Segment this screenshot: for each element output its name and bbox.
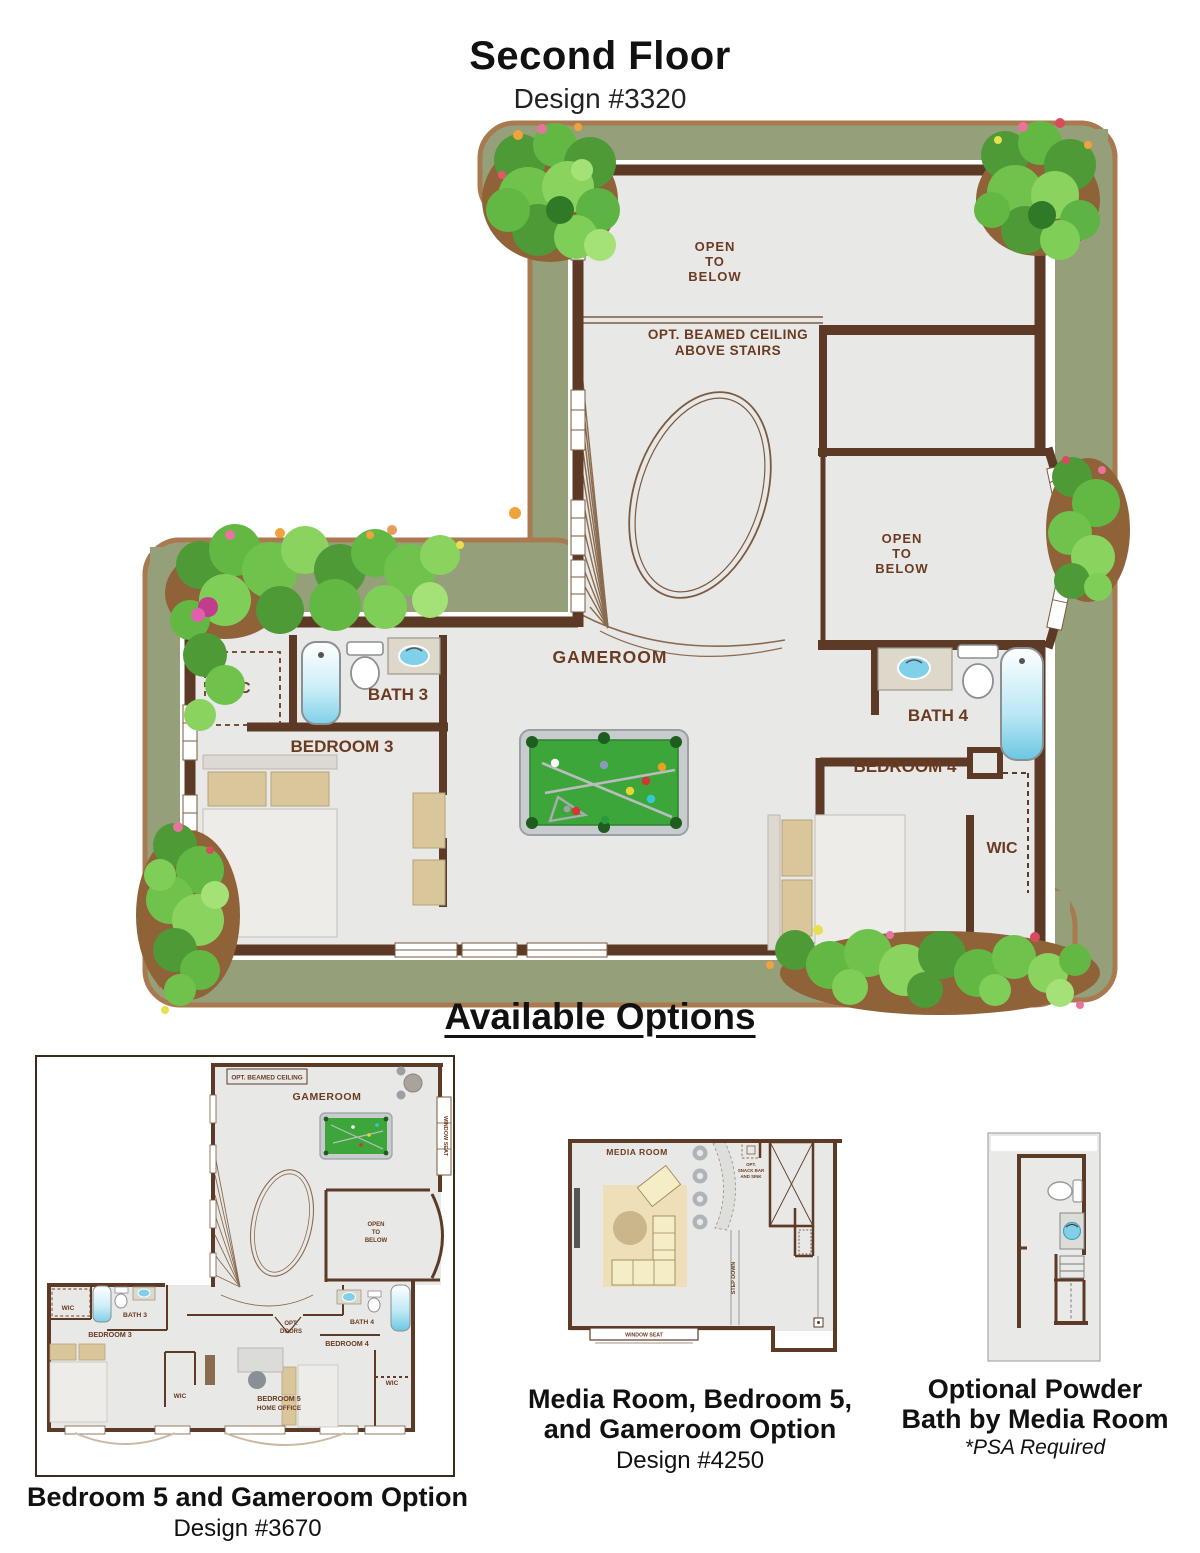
svg-text:BELOW: BELOW xyxy=(875,561,928,576)
svg-text:BELOW: BELOW xyxy=(688,269,741,284)
option1-label-wic-right: WIC xyxy=(386,1380,399,1387)
option3-caption: Optional Powder Bath by Media Room *PSA … xyxy=(890,1374,1180,1460)
svg-text:HOME OFFICE: HOME OFFICE xyxy=(257,1405,302,1412)
label-gameroom: GAMEROOM xyxy=(553,647,668,667)
option2-tv xyxy=(574,1188,580,1248)
option3-sink xyxy=(1060,1213,1084,1249)
label-bath3: BATH 3 xyxy=(368,685,428,704)
option2-label-snack-bar: OPT. xyxy=(746,1162,756,1167)
page-title: Second Floor xyxy=(0,34,1200,79)
svg-text:TO: TO xyxy=(892,546,912,561)
option1-label-bedroom4: BEDROOM 4 xyxy=(325,1339,369,1348)
label-bedroom4: BEDROOM 4 xyxy=(854,757,958,776)
option1-caption-title: Bedroom 5 and Gameroom Option xyxy=(15,1482,480,1512)
option1-pool-table xyxy=(320,1113,392,1159)
label-bath4: BATH 4 xyxy=(908,706,969,725)
option3-header-strip xyxy=(991,1136,1097,1151)
option2-label-window-seat: WINDOW SEAT xyxy=(625,1333,663,1339)
option1-plan: WINDOW SEAT xyxy=(35,1055,455,1477)
label-beamed-ceiling: OPT. BEAMED CEILING xyxy=(648,327,808,342)
option1-window-seat: WINDOW SEAT xyxy=(437,1097,451,1175)
option2-caption: Media Room, Bedroom 5, and Gameroom Opti… xyxy=(505,1384,875,1475)
option2-label-media-room: MEDIA ROOM xyxy=(606,1147,668,1157)
option1-label-opt-beamed: OPT. BEAMED CEILING xyxy=(231,1075,302,1082)
option1-label-bedroom5: BEDROOM 5 xyxy=(257,1394,301,1403)
option1-label-bath4: BATH 4 xyxy=(350,1319,374,1326)
option1-design-number: Design #3670 xyxy=(15,1515,480,1543)
option1-label-bedroom3: BEDROOM 3 xyxy=(88,1330,132,1339)
svg-text:ABOVE STAIRS: ABOVE STAIRS xyxy=(675,343,781,358)
label-wic-right: WIC xyxy=(986,840,1018,857)
option3-psa-note: *PSA Required xyxy=(890,1436,1180,1460)
pool-table xyxy=(520,730,688,835)
option1-caption: Bedroom 5 and Gameroom Option Design #36… xyxy=(15,1482,480,1543)
option2-plan: STEP DOWN OPT. SNACK BAR AND SINK xyxy=(555,1128,855,1378)
option2-caption-title: Media Room, Bedroom 5, and Gameroom Opti… xyxy=(505,1384,875,1444)
sheet-header: Second Floor Design #3320 xyxy=(0,34,1200,115)
option1-label-wic-left: WIC xyxy=(62,1305,75,1312)
option2-label-step-down: STEP DOWN xyxy=(731,1262,737,1295)
option1-label-bath3: BATH 3 xyxy=(123,1312,147,1319)
svg-text:SNACK BAR: SNACK BAR xyxy=(738,1168,765,1173)
tree-cluster-top-left xyxy=(482,123,620,262)
svg-text:TO: TO xyxy=(705,254,725,269)
option1-label-window-seat: WINDOW SEAT xyxy=(442,1116,448,1157)
available-options-header: Available Options xyxy=(0,996,1200,1038)
label-bedroom3: BEDROOM 3 xyxy=(291,737,394,756)
svg-text:AND SINK: AND SINK xyxy=(740,1174,762,1179)
svg-text:DOORS: DOORS xyxy=(280,1329,302,1335)
option3-caption-title: Optional Powder Bath by Media Room xyxy=(890,1374,1180,1434)
page-design-number: Design #3320 xyxy=(0,83,1200,115)
option1-label-gameroom: GAMEROOM xyxy=(293,1091,362,1103)
option2-design-number: Design #4250 xyxy=(505,1447,875,1475)
floorplan-sheet: Second Floor Design #3320 xyxy=(0,0,1200,1553)
bedroom4-bed xyxy=(768,815,905,950)
svg-text:BELOW: BELOW xyxy=(365,1238,388,1244)
option1-label-otb: OPEN xyxy=(367,1222,384,1228)
svg-text:TO: TO xyxy=(372,1230,381,1236)
label-open-to-below-right: OPEN xyxy=(882,531,923,546)
option1-label-opt-doors: OPT. xyxy=(284,1321,298,1327)
option3-toilet xyxy=(1048,1180,1082,1202)
available-options-title: Available Options xyxy=(444,996,755,1037)
option1-label-wic-mid: WIC xyxy=(174,1393,187,1400)
main-floor-plan: OPEN TO BELOW OPT. BEAMED CEILING ABOVE … xyxy=(130,115,1130,1015)
option3-plan xyxy=(978,1128,1103,1373)
label-open-to-below-top: OPEN xyxy=(695,239,736,254)
